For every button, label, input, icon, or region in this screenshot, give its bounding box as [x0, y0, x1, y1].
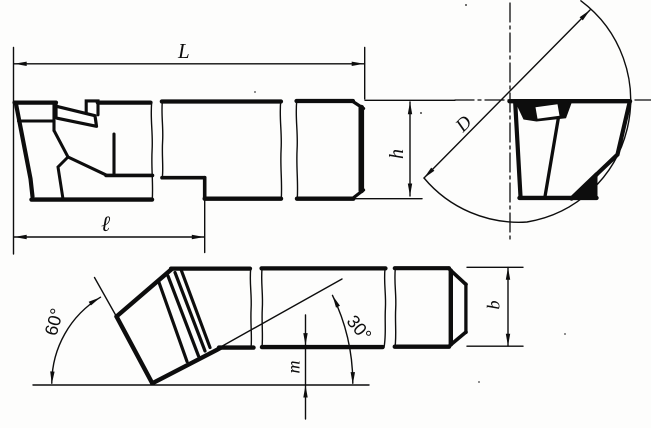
- svg-text:b: b: [484, 301, 504, 310]
- svg-text:m: m: [284, 361, 304, 374]
- svg-text:ℓ: ℓ: [101, 211, 111, 236]
- svg-text:h: h: [386, 149, 408, 159]
- svg-text:L: L: [177, 39, 190, 63]
